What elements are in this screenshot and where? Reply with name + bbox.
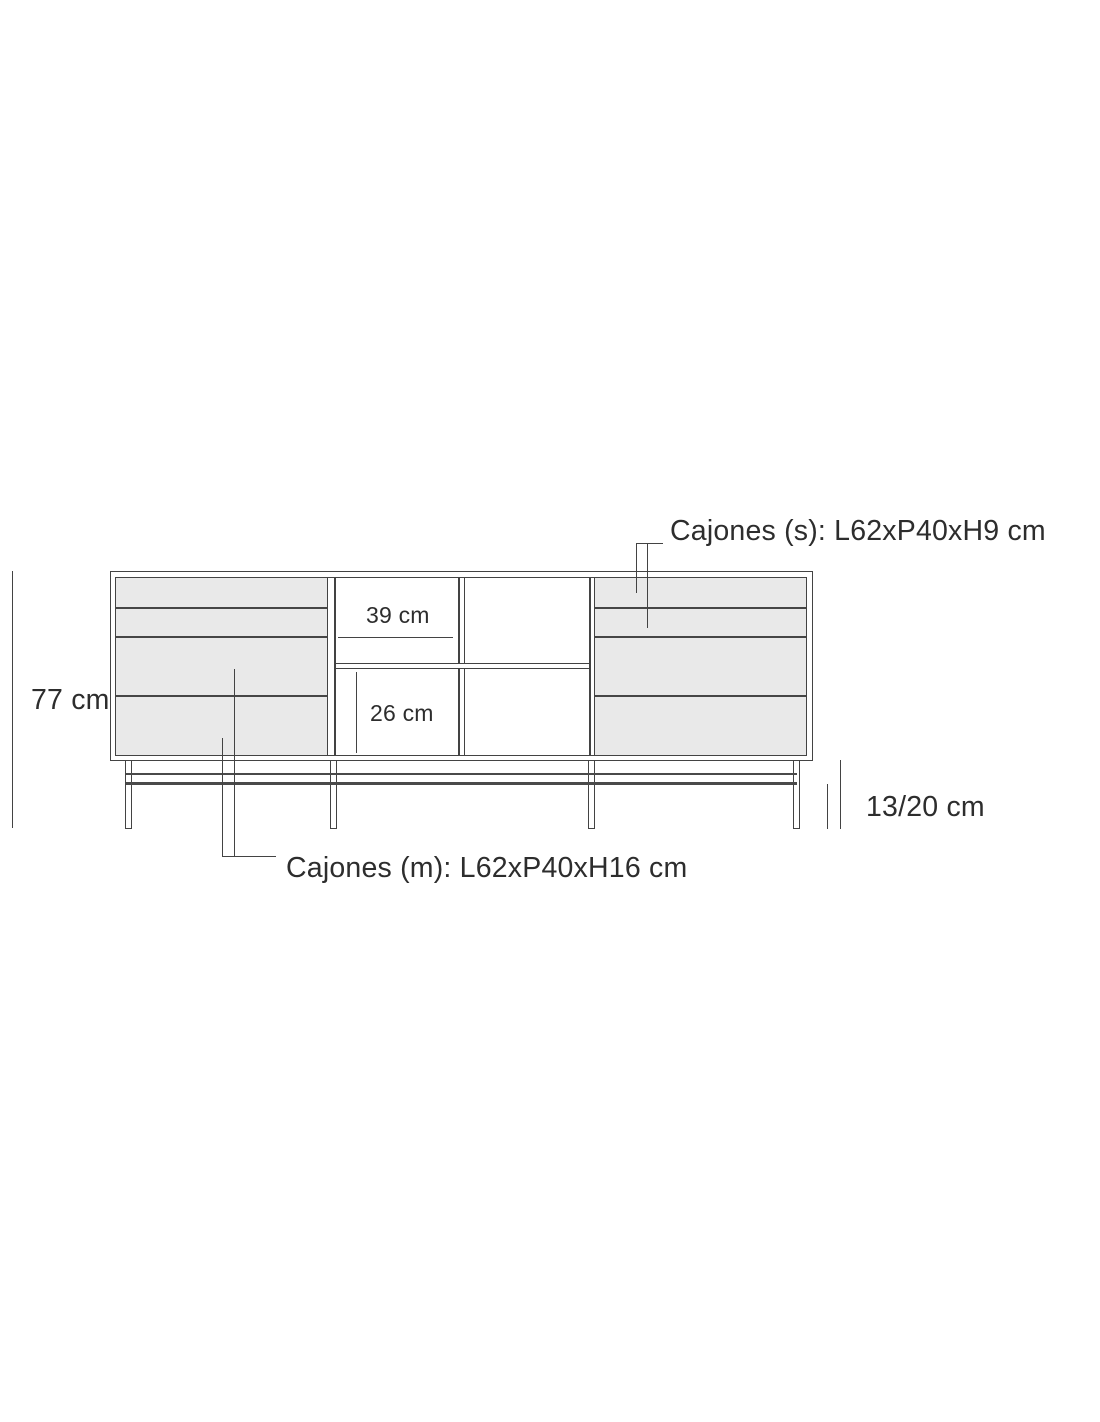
niche-height-label: 26 cm [370,702,434,725]
leg [125,761,132,829]
leg [793,761,800,829]
medium-drawers-callout-line [222,856,276,858]
left-drawer-stack [115,578,329,755]
base-clearance-tall-dim-line [840,760,842,829]
middle-shelf [336,663,590,669]
base-clearance-label: 13/20 cm [866,793,985,822]
drawer-panel [595,638,806,695]
base-clearance-short-dim-line [827,784,829,829]
medium-drawers-callout-line [234,669,236,857]
drawer-panel [116,578,328,607]
sideboard-dimension-diagram: 77 cm 39 cm 26 cm Cajon [0,0,1100,1422]
medium-drawers-callout-line [222,738,224,857]
base-rail [126,773,797,776]
medium-drawers-label: Cajones (m): L62xP40xH16 cm [286,854,687,883]
drawer-panel [595,578,806,607]
right-drawer-stack [594,578,807,755]
leg [588,761,595,829]
niche-height-dim-line [356,672,358,753]
small-drawers-label: Cajones (s): L62xP40xH9 cm [670,517,1046,546]
drawer-panel [116,638,328,695]
partition-wall-line [589,578,591,755]
cabinet-inner-bottom-line [115,755,807,757]
niche-width-label: 39 cm [366,604,430,627]
niche-width-dim-line [338,637,453,639]
overall-height-label: 77 cm [31,686,110,715]
leg [330,761,337,829]
overall-height-dim-line [12,571,14,828]
small-drawers-callout-line [636,543,663,545]
small-drawers-callout-line [636,543,638,593]
drawer-panel [595,609,806,636]
small-drawers-callout-line [647,543,649,628]
base-rail [126,782,797,785]
drawer-panel [116,609,328,636]
drawer-panel [595,697,806,755]
